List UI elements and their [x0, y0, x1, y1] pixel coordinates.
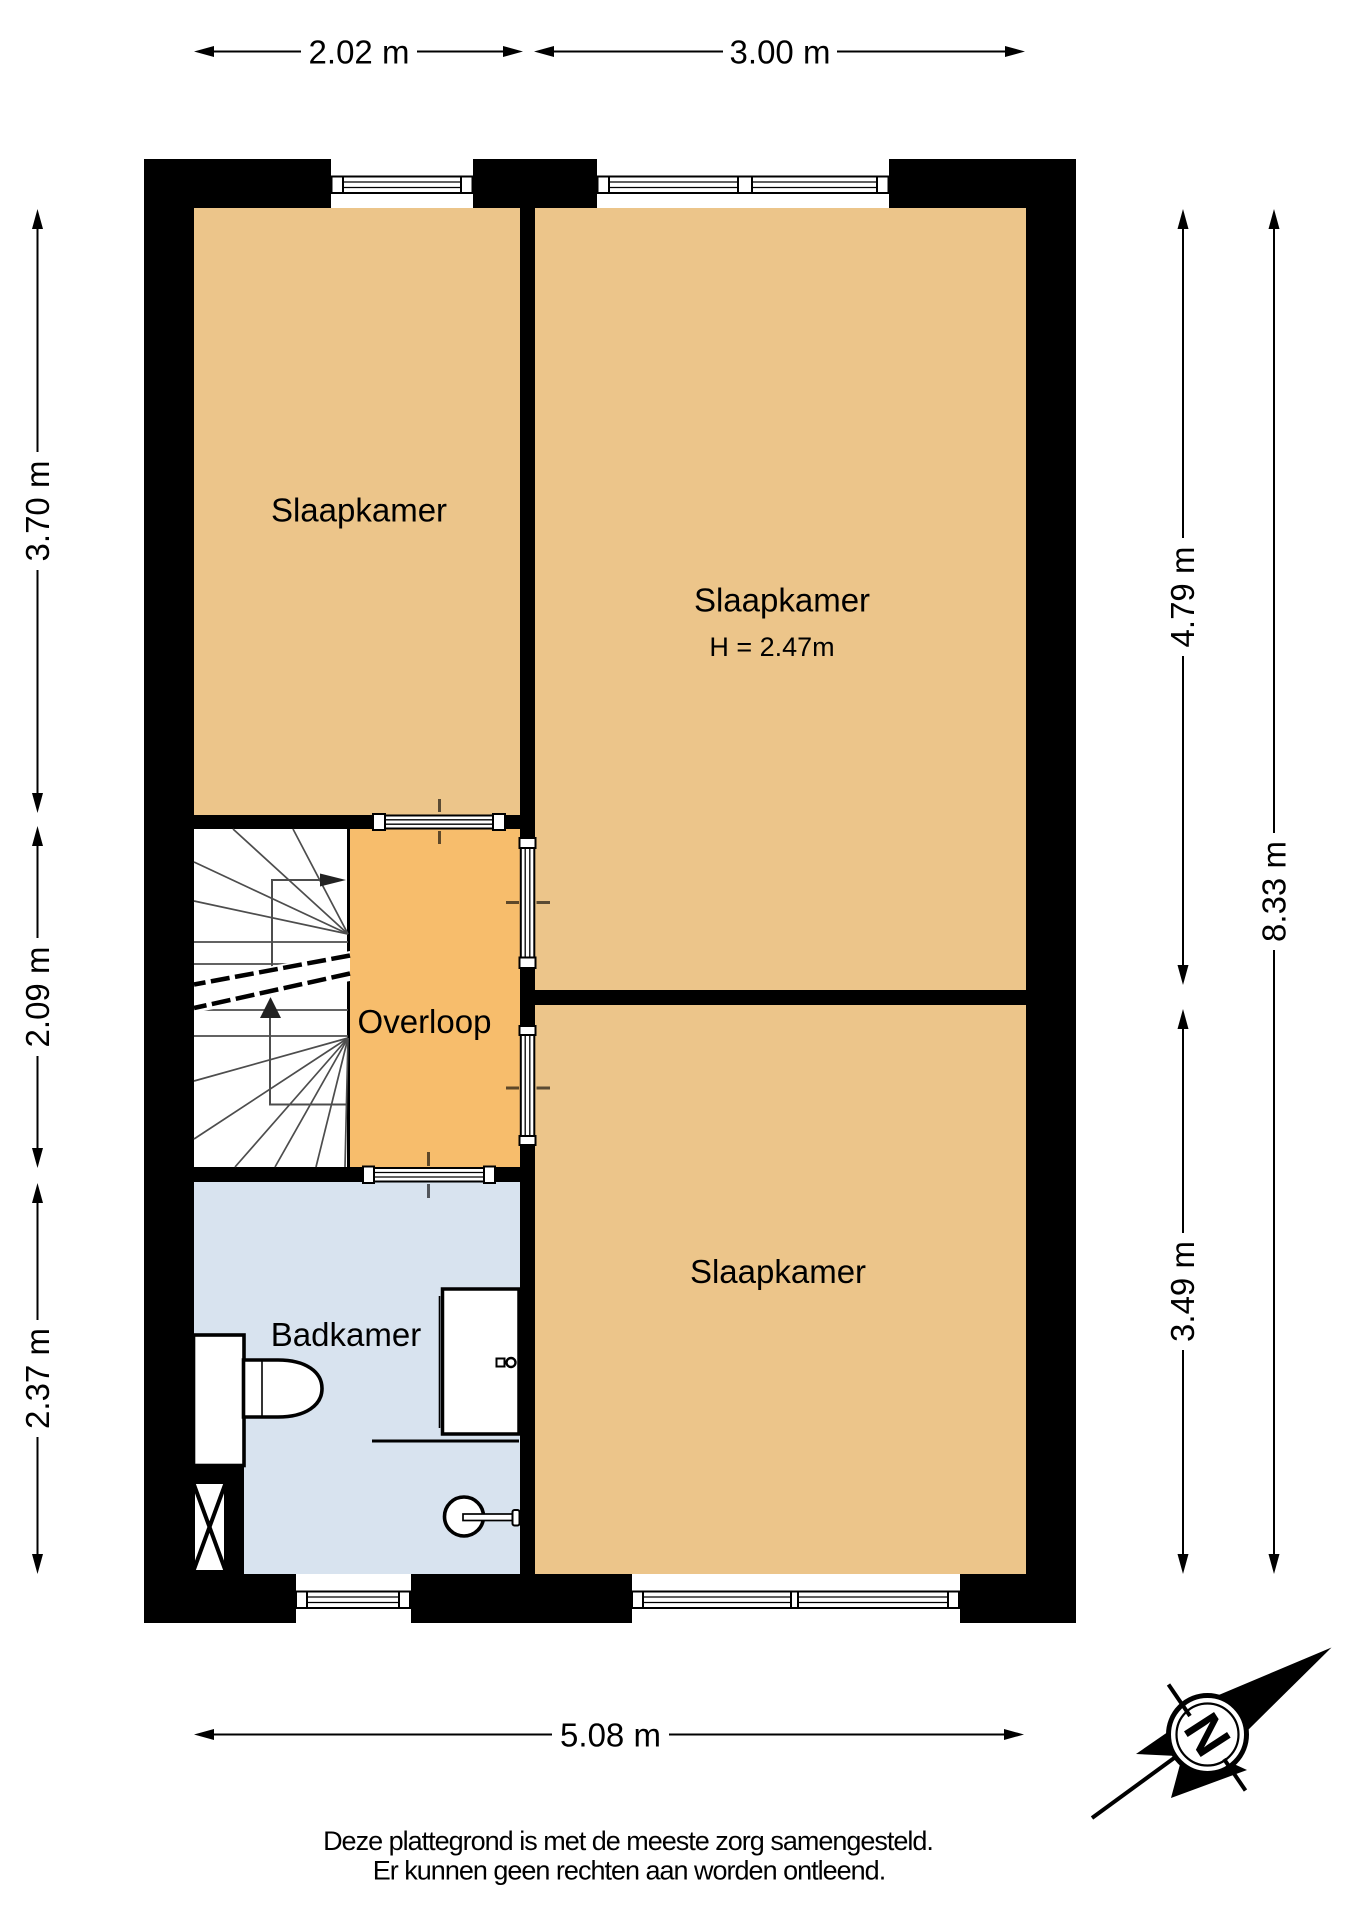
svg-text:H = 2.47m: H = 2.47m — [709, 632, 834, 662]
svg-text:3.49 m: 3.49 m — [1164, 1241, 1201, 1342]
svg-text:Slaapkamer: Slaapkamer — [694, 582, 870, 619]
svg-text:Overloop: Overloop — [358, 1003, 492, 1040]
svg-text:3.00 m: 3.00 m — [730, 34, 831, 71]
svg-text:3.70 m: 3.70 m — [19, 461, 56, 562]
svg-text:8.33 m: 8.33 m — [1256, 841, 1293, 942]
svg-text:2.09 m: 2.09 m — [19, 947, 56, 1048]
svg-text:4.79 m: 4.79 m — [1164, 547, 1201, 648]
svg-text:Badkamer: Badkamer — [271, 1316, 421, 1353]
svg-text:Slaapkamer: Slaapkamer — [690, 1253, 866, 1290]
svg-text:5.08 m: 5.08 m — [560, 1717, 661, 1754]
svg-text:2.02 m: 2.02 m — [309, 34, 410, 71]
svg-text:Er kunnen geen rechten aan wor: Er kunnen geen rechten aan worden ontlee… — [373, 1856, 885, 1886]
svg-text:2.37 m: 2.37 m — [19, 1328, 56, 1429]
svg-text:Slaapkamer: Slaapkamer — [271, 492, 447, 529]
svg-text:Deze plattegrond is met de mee: Deze plattegrond is met de meeste zorg s… — [323, 1826, 933, 1856]
